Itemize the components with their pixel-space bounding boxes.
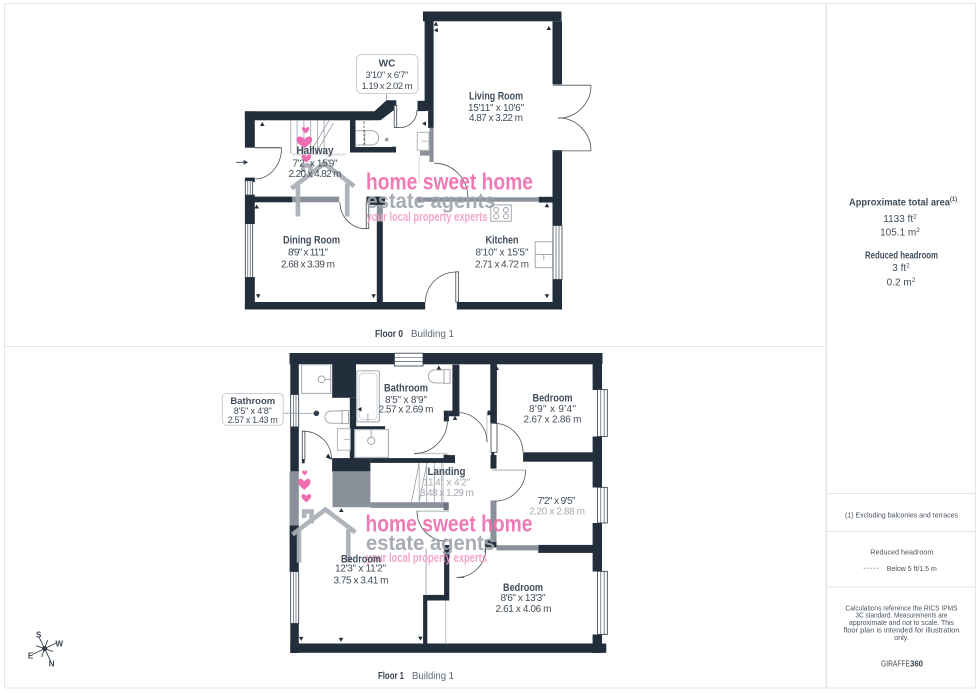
- svg-text:N: N: [49, 660, 55, 669]
- svg-text:Kitchen: Kitchen: [486, 235, 519, 247]
- svg-text:3.75 x 3.41 m: 3.75 x 3.41 m: [334, 575, 389, 586]
- svg-text:8'10" x 15'5": 8'10" x 15'5": [476, 248, 529, 259]
- svg-text:Floor 1: Floor 1: [378, 671, 404, 682]
- svg-text:2.71 x 4.72 m: 2.71 x 4.72 m: [475, 260, 529, 271]
- svg-text:only.: only.: [894, 633, 909, 642]
- svg-text:GIRAFFE: GIRAFFE: [881, 658, 910, 668]
- svg-text:8'6" x 13'3": 8'6" x 13'3": [501, 593, 546, 604]
- svg-text:Below 5 ft/1.5 m: Below 5 ft/1.5 m: [887, 564, 937, 573]
- svg-text:2.20 x 4.82 m: 2.20 x 4.82 m: [289, 169, 342, 180]
- svg-text:2.61 x 4.06 m: 2.61 x 4.06 m: [496, 604, 552, 615]
- svg-text:12'3" x 11'2": 12'3" x 11'2": [335, 564, 386, 575]
- svg-text:(1) Excluding balconies and te: (1) Excluding balconies and terraces: [845, 510, 958, 519]
- svg-text:2.68 x 3.39 m: 2.68 x 3.39 m: [281, 260, 335, 271]
- svg-text:3.48 x 1.29 m: 3.48 x 1.29 m: [420, 488, 474, 499]
- svg-text:105.1 m2: 105.1 m2: [880, 227, 920, 239]
- svg-text:2.67 x 2.86 m: 2.67 x 2.86 m: [524, 415, 582, 426]
- svg-text:3 ft2: 3 ft2: [892, 263, 910, 275]
- svg-text:Dining Room: Dining Room: [283, 235, 340, 247]
- svg-text:(1): (1): [950, 197, 957, 203]
- svg-text:Approximate total area: Approximate total area: [849, 198, 950, 209]
- svg-text:1.19 x 2.02 m: 1.19 x 2.02 m: [362, 81, 413, 92]
- svg-text:WC: WC: [379, 59, 396, 70]
- svg-text:Bedroom: Bedroom: [533, 393, 573, 405]
- svg-text:Building 1: Building 1: [411, 329, 454, 340]
- svg-text:Living Room: Living Room: [469, 91, 523, 103]
- svg-text:1133 ft2: 1133 ft2: [883, 213, 917, 225]
- svg-text:2.57 x 2.69 m: 2.57 x 2.69 m: [379, 404, 434, 415]
- svg-text:2.20 x 2.88 m: 2.20 x 2.88 m: [529, 507, 585, 518]
- svg-text:E: E: [28, 652, 34, 661]
- svg-text:your local property experts: your local property experts: [367, 210, 488, 224]
- svg-text:11'4" x 4'2": 11'4" x 4'2": [423, 477, 470, 488]
- svg-text:360: 360: [910, 658, 923, 668]
- svg-text:Building 1: Building 1: [412, 671, 454, 682]
- svg-text:4.87 x 3.22 m: 4.87 x 3.22 m: [469, 113, 523, 124]
- svg-text:2.57 x 1.43 m: 2.57 x 1.43 m: [228, 415, 278, 425]
- svg-text:W: W: [56, 640, 64, 649]
- svg-text:3'10" x 6'7": 3'10" x 6'7": [366, 70, 409, 81]
- svg-text:S: S: [36, 631, 42, 640]
- svg-text:0.2 m2: 0.2 m2: [887, 277, 916, 289]
- svg-text:Reduced headroom: Reduced headroom: [870, 547, 933, 556]
- svg-text:8'9" x 11'1": 8'9" x 11'1": [288, 248, 328, 259]
- svg-text:Floor 0: Floor 0: [375, 329, 403, 340]
- svg-text:Reduced headroom: Reduced headroom: [865, 250, 938, 261]
- svg-text:Landing: Landing: [428, 466, 466, 478]
- svg-text:7'2" x 9'5": 7'2" x 9'5": [538, 496, 576, 507]
- svg-text:Bathroom: Bathroom: [384, 383, 428, 395]
